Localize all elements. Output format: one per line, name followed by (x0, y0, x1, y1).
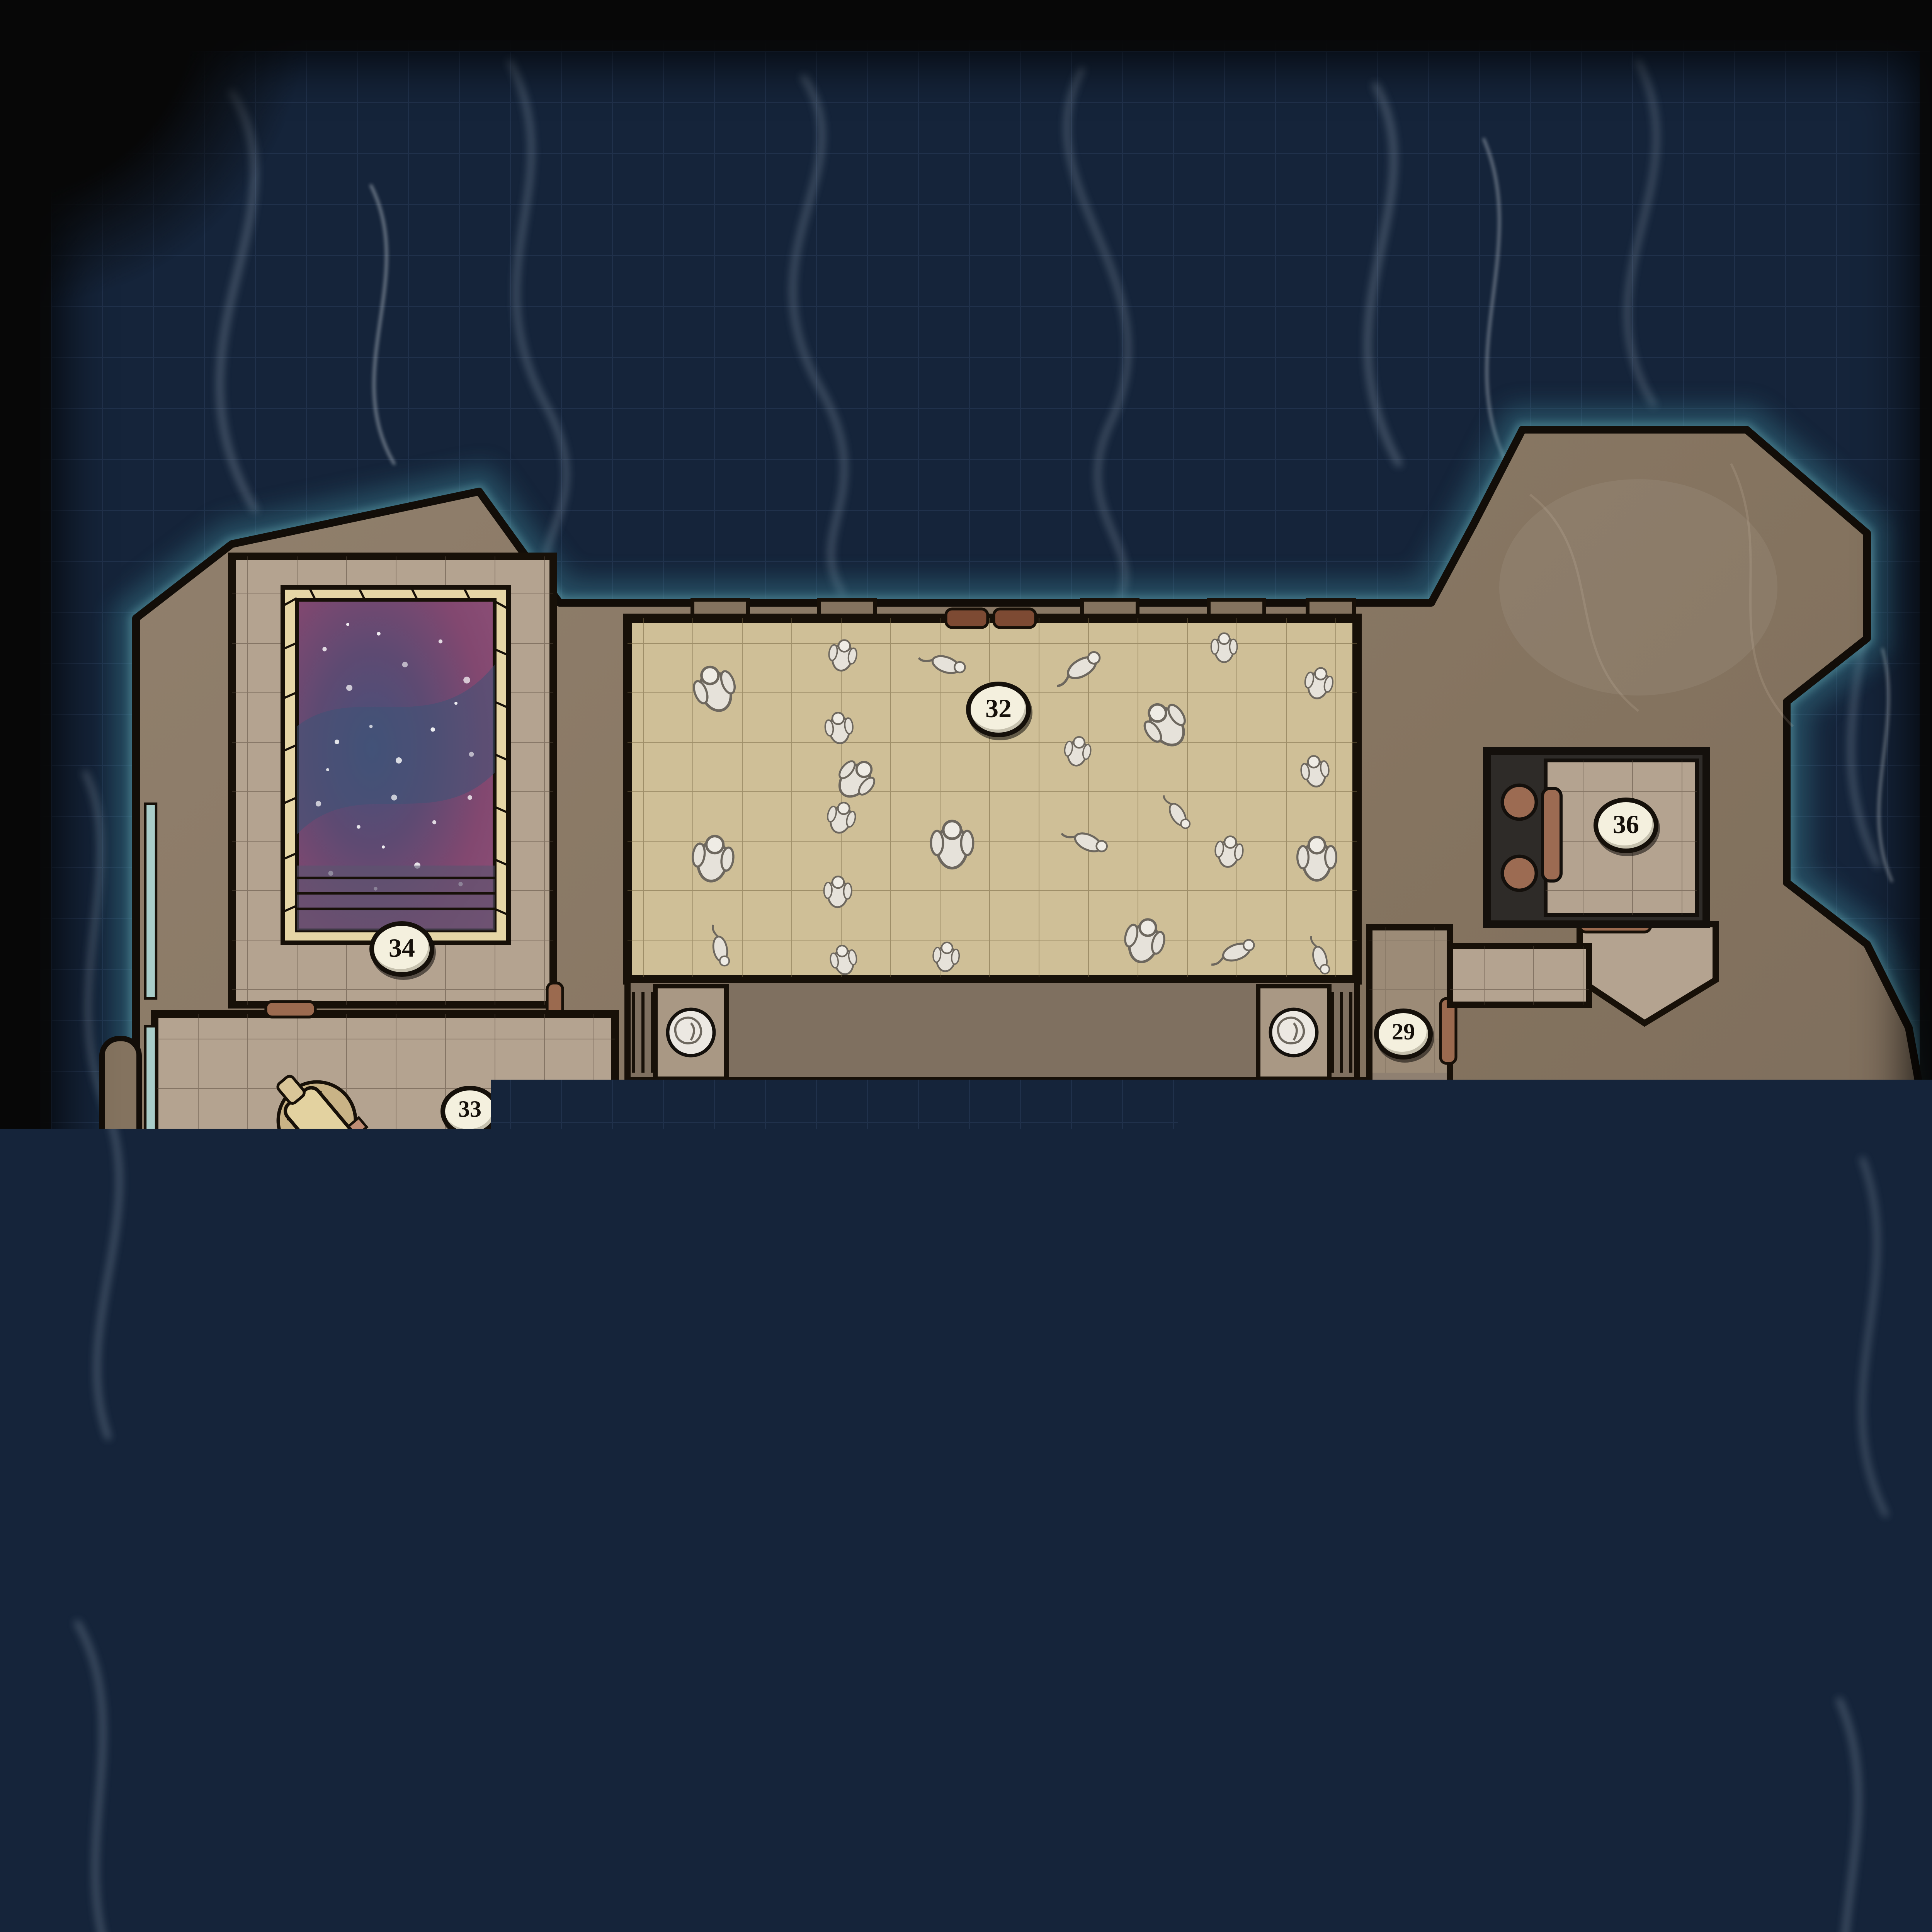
room-badge-31: 31 (1609, 1444, 1674, 1499)
room-badge-30: 30 (1629, 1734, 1694, 1790)
entrance-door (946, 609, 988, 628)
shelf (1543, 788, 1561, 881)
pit-stairs (1193, 1419, 1283, 1465)
door (532, 1706, 547, 1747)
double-door (1643, 1513, 1683, 1529)
bench (331, 1765, 448, 1808)
door (618, 1168, 635, 1230)
double-door (1643, 1547, 1683, 1563)
room-badge-33: 33 (440, 1086, 499, 1137)
room-badge-34: 34 (369, 921, 434, 977)
world-pool (844, 1606, 1144, 1906)
window-strip (145, 804, 156, 998)
peg (1502, 856, 1536, 890)
spiral-staircase (779, 1107, 1215, 1505)
map-artwork (0, 0, 1932, 1932)
entrance-door (994, 609, 1036, 628)
door (532, 1753, 547, 1793)
room-33-observatory (136, 1002, 615, 1478)
bed (297, 1558, 482, 1756)
room-30 (1453, 1547, 1762, 1932)
room-badge-36: 36 (1594, 798, 1658, 853)
astral-pool (283, 587, 509, 943)
double-door (1597, 1513, 1637, 1529)
door (1440, 998, 1456, 1063)
door (266, 1002, 315, 1017)
dais-alcoves (628, 980, 1357, 1082)
room-badge-28: 28 (969, 1495, 1034, 1550)
battle-map: 28 29 30 31 32 33 34 35 36 Praxys The Th… (0, 0, 1932, 1932)
peg (1502, 785, 1536, 819)
pool-steps (297, 866, 495, 930)
double-door (1597, 1547, 1637, 1563)
room-32-statue-hall (628, 600, 1357, 980)
stairs-29 (1372, 1073, 1447, 1125)
room-badge-29: 29 (1374, 1009, 1433, 1060)
door (1453, 1754, 1468, 1794)
blanket (300, 1632, 479, 1756)
room-badge-32: 32 (966, 682, 1031, 737)
door (1453, 1801, 1468, 1841)
room-badge-35: 35 (355, 1835, 420, 1890)
